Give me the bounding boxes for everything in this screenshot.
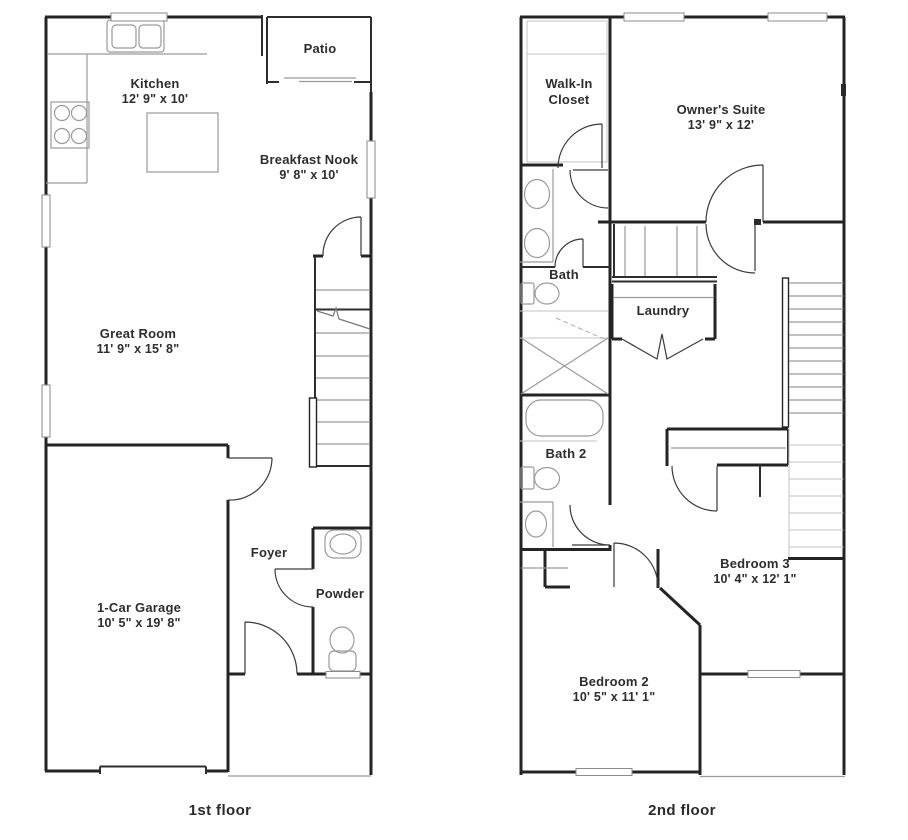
great-room-window-upper (42, 195, 50, 247)
first-floor-walls (45, 17, 371, 775)
owner-suite-window (768, 13, 827, 21)
vestibule-door (570, 170, 608, 208)
room-label-great-room: Great Room 11' 9" x 15' 8" (97, 326, 180, 358)
room-label-bath: Bath (549, 267, 579, 283)
stairs-second-treads (789, 283, 844, 413)
room-label-bedroom2: Bedroom 2 10' 5" x 11' 1" (573, 674, 656, 706)
walk-in-closet-door (558, 124, 602, 168)
stairs-direction-line (317, 308, 370, 329)
room-label-breakfast-nook: Breakfast Nook 9' 8" x 10' (260, 152, 358, 184)
floor-plan-drawing (0, 0, 908, 840)
stairs-first-handrail (310, 398, 317, 467)
owner-suite-wall-nub (841, 84, 846, 96)
powder-sink (325, 530, 361, 558)
first-floor-plan (42, 13, 375, 776)
bath-door (555, 239, 583, 267)
owner-suite-door (706, 165, 763, 222)
garage-entry-door (228, 458, 272, 500)
stair-hall-door (706, 224, 755, 273)
stairs-second-handrail (783, 278, 789, 427)
bath-double-vanity (520, 169, 553, 262)
patio-slider-door (284, 78, 356, 82)
hall-window (624, 13, 684, 21)
floor-plan-canvas: Kitchen 12' 9" x 10' Patio Breakfast Noo… (0, 0, 908, 840)
breakfast-nook-door (323, 217, 361, 256)
room-label-powder: Powder (316, 586, 364, 602)
room-label-patio: Patio (304, 41, 337, 57)
kitchen-island (147, 113, 218, 172)
room-label-kitchen: Kitchen 12' 9" x 10' (122, 76, 188, 108)
bedroom3-door (672, 466, 717, 511)
garage-door (100, 767, 206, 775)
breakfast-nook-window (367, 141, 375, 198)
kitchen-window (111, 13, 167, 21)
bath-toilet (521, 283, 559, 304)
room-label-bath2: Bath 2 (546, 446, 587, 462)
room-label-foyer: Foyer (251, 545, 287, 561)
stairs-first-walls (313, 256, 371, 466)
bath-shower (520, 311, 608, 394)
laundry-bifold-doors (622, 334, 703, 359)
bath2-door (570, 505, 610, 545)
kitchen-sink (107, 20, 164, 52)
bedroom3-window (748, 671, 800, 678)
kitchen-counter (46, 54, 207, 183)
great-room-window-lower (42, 385, 50, 437)
bedroom2-door (614, 543, 658, 587)
cooktop (51, 102, 89, 148)
room-label-owners-suite: Owner's Suite 13' 9" x 12' (677, 102, 766, 134)
second-floor-caption: 2nd floor (648, 802, 716, 819)
stairs-second-lower-treads (789, 428, 844, 557)
bath2-toilet (521, 467, 560, 490)
bedroom2-window (576, 769, 632, 776)
room-label-garage: 1-Car Garage 10' 5" x 19' 8" (97, 600, 181, 632)
first-floor-caption: 1st floor (189, 802, 252, 819)
powder-door (275, 569, 313, 607)
room-label-laundry: Laundry (637, 303, 690, 319)
powder-toilet (326, 627, 360, 678)
room-label-walk-in-closet: Walk-In Closet (532, 76, 606, 109)
bath2-vanity (520, 502, 553, 547)
stairwell-treads (625, 226, 697, 276)
front-door (245, 622, 297, 674)
room-label-bedroom3: Bedroom 3 10' 4" x 12' 1" (713, 556, 796, 588)
bath2-tub (520, 400, 603, 441)
